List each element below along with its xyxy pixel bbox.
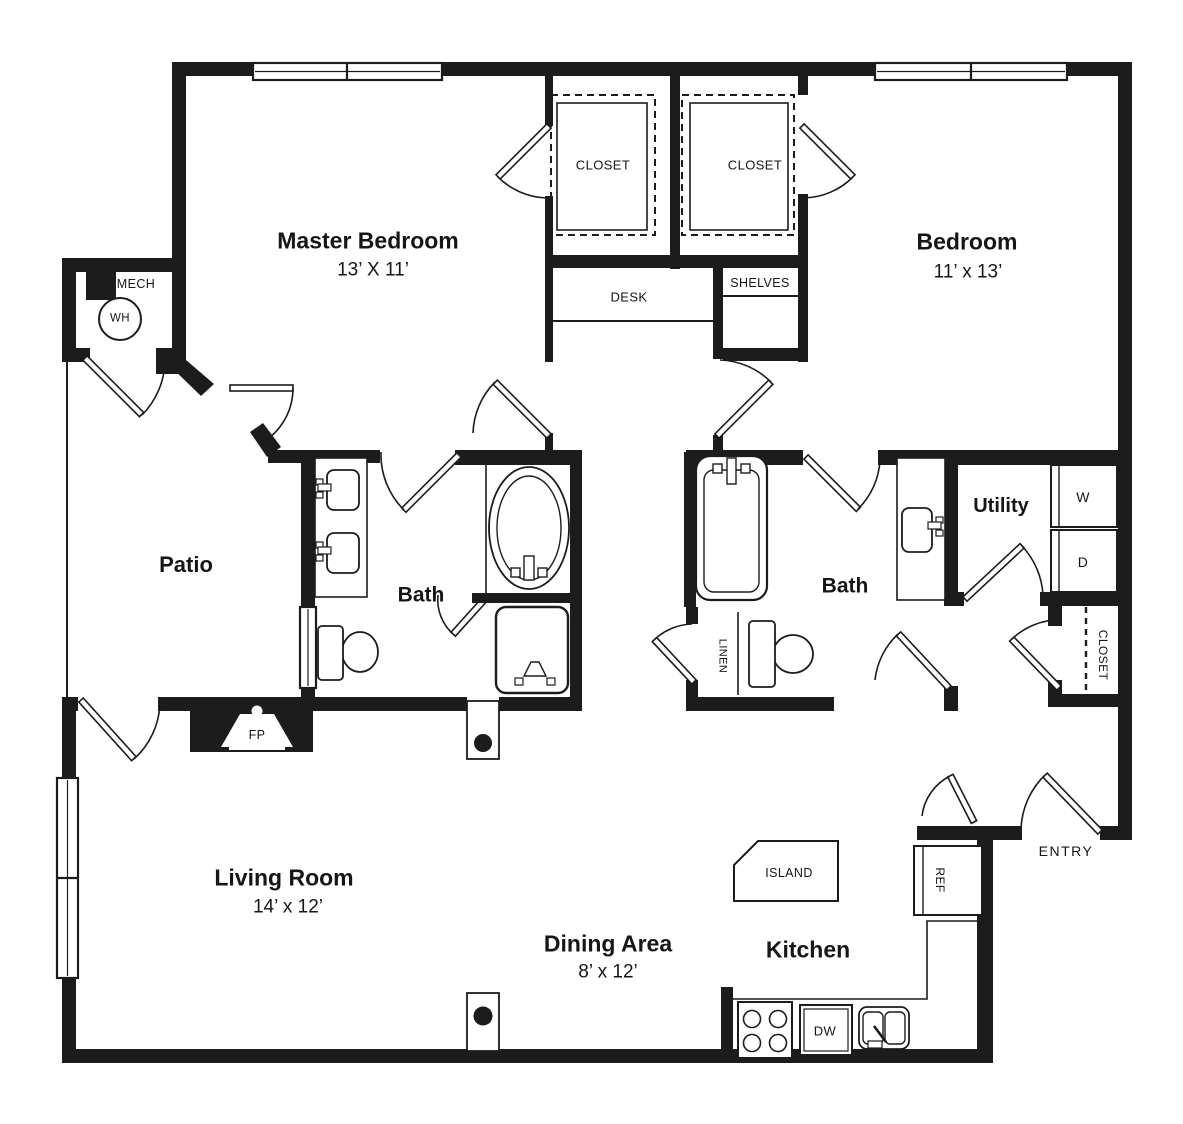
bath2-fixtures — [696, 456, 945, 687]
living-room-label: Living Room — [214, 867, 353, 890]
linen-label: LINEN — [717, 639, 728, 673]
master-bath-fixtures — [315, 458, 582, 693]
dryer-label: D — [1078, 555, 1089, 569]
water-heater-label: WH — [110, 313, 130, 325]
stove — [738, 1002, 792, 1058]
mech-chase — [86, 270, 116, 300]
dishwasher-label: DW — [814, 1025, 836, 1038]
built-ins — [553, 296, 800, 321]
columns — [467, 701, 499, 1051]
mech-label: MECH — [117, 278, 155, 291]
floor-plan: Master Bedroom 13’ X 11’ Bedroom 11’ x 1… — [0, 0, 1183, 1124]
island-label: ISLAND — [765, 867, 813, 880]
bedroom-dims: 11’ x 13’ — [934, 263, 1003, 282]
refrigerator-box — [914, 846, 982, 915]
window-bedroom — [875, 63, 1067, 80]
bath2-label: Bath — [822, 576, 869, 597]
closet-hall-label: CLOSET — [1097, 630, 1109, 680]
kitchen-label: Kitchen — [766, 939, 850, 962]
dining-area-dims: 8’ x 12’ — [578, 963, 638, 982]
patio-label: Patio — [159, 554, 213, 576]
desk-label: DESK — [610, 291, 647, 304]
shelves-label: SHELVES — [730, 277, 790, 290]
closet-bedroom-label: CLOSET — [728, 159, 782, 172]
fireplace — [190, 700, 313, 752]
window-master-bath — [300, 607, 316, 688]
master-bedroom-dims: 13’ X 11’ — [337, 261, 409, 280]
fireplace-label: FP — [249, 729, 266, 742]
window-master-bedroom — [253, 63, 442, 80]
kitchen-sink — [859, 1007, 909, 1049]
dining-area-label: Dining Area — [544, 933, 672, 956]
utility-fixtures — [1051, 465, 1117, 592]
utility-label: Utility — [973, 496, 1029, 516]
closet-shelving — [551, 95, 1086, 695]
master-bath-label: Bath — [398, 585, 445, 606]
washer-label: W — [1076, 490, 1090, 504]
entry-label: ENTRY — [1039, 844, 1094, 858]
refrigerator-label: REF — [934, 867, 946, 892]
window-living-room — [57, 778, 78, 978]
closet-master-label: CLOSET — [576, 159, 630, 172]
master-bedroom-label: Master Bedroom — [277, 230, 458, 253]
living-room-dims: 14’ x 12’ — [253, 898, 323, 917]
bedroom-label: Bedroom — [917, 231, 1018, 254]
